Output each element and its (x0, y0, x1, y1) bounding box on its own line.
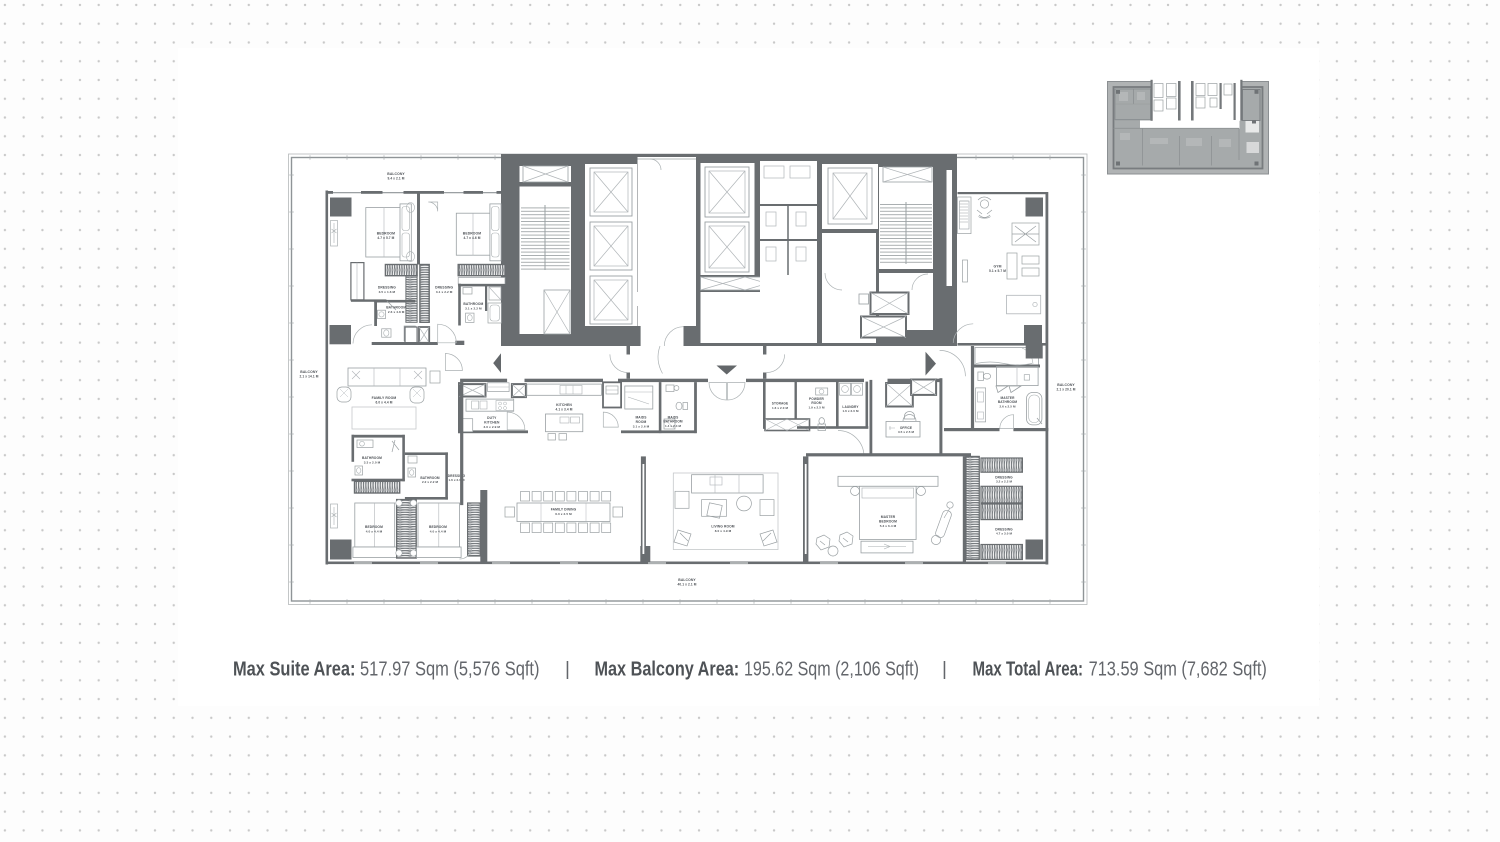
svg-text:|: | (942, 659, 947, 680)
svg-text:|: | (565, 659, 570, 680)
svg-text:3.5 x 2.5 M: 3.5 x 2.5 M (898, 430, 915, 434)
svg-text:4.7 x 3.0 M: 4.7 x 3.0 M (996, 532, 1013, 536)
svg-text:Max Total Area:: Max Total Area: (973, 659, 1084, 681)
svg-text:713.59 Sqm (7,682 Sqft): 713.59 Sqm (7,682 Sqft) (1089, 659, 1267, 681)
svg-text:2.6 x 2.5 M: 2.6 x 2.5 M (999, 404, 1016, 408)
svg-text:ROOM: ROOM (636, 420, 647, 424)
svg-text:4.1 x 3.4 M: 4.1 x 3.4 M (555, 408, 572, 412)
svg-text:BALCONY: BALCONY (300, 370, 318, 374)
svg-text:BEDROOM: BEDROOM (429, 525, 447, 529)
svg-text:2.1 x 14.1 M: 2.1 x 14.1 M (300, 375, 319, 379)
svg-text:1.6 x 2.0 M: 1.6 x 2.0 M (842, 409, 859, 413)
svg-text:BEDROOM: BEDROOM (377, 232, 395, 236)
svg-text:1.4 x 2.4 M: 1.4 x 2.4 M (665, 424, 682, 428)
svg-text:2.2 x 2.2 M: 2.2 x 2.2 M (422, 480, 439, 484)
svg-text:BATHROOM: BATHROOM (386, 306, 406, 310)
svg-text:195.62 Sqm (2,106 Sqft): 195.62 Sqm (2,106 Sqft) (744, 659, 919, 681)
svg-text:BALCONY: BALCONY (387, 172, 405, 176)
svg-text:STORAGE: STORAGE (772, 402, 788, 406)
svg-text:BATHROOM: BATHROOM (463, 302, 483, 306)
svg-text:3.1 x 2.2 M: 3.1 x 2.2 M (465, 306, 482, 310)
svg-text:40.1 x 2.1 M: 40.1 x 2.1 M (678, 583, 697, 587)
svg-text:KITCHEN: KITCHEN (556, 403, 572, 407)
svg-text:3.3 x 2.0 M: 3.3 x 2.0 M (364, 460, 381, 464)
svg-text:FAMILY DINING: FAMILY DINING (551, 508, 577, 512)
svg-text:5.1 x 5.7 M: 5.1 x 5.7 M (989, 269, 1006, 273)
svg-text:9.4 x 2.1 M: 9.4 x 2.1 M (387, 177, 404, 181)
svg-text:4.7 x 4.6 M: 4.7 x 4.6 M (463, 236, 480, 240)
svg-text:1.9 x 2.5 M: 1.9 x 2.5 M (808, 405, 825, 409)
svg-text:3.1 x 2.2 M: 3.1 x 2.2 M (436, 290, 453, 294)
svg-text:BALCONY: BALCONY (1057, 383, 1075, 387)
svg-text:Max Suite Area:: Max Suite Area: (233, 659, 356, 681)
svg-text:BALCONY: BALCONY (678, 578, 696, 582)
svg-text:3.5 x 1.6 M: 3.5 x 1.6 M (379, 290, 396, 294)
svg-text:DUTY: DUTY (487, 416, 497, 420)
svg-text:MASTER: MASTER (881, 515, 896, 519)
svg-text:5.3 x 6.4 M: 5.3 x 6.4 M (880, 524, 897, 528)
svg-text:6.0 x 4.4 M: 6.0 x 4.4 M (375, 401, 392, 405)
svg-text:BATHROOM: BATHROOM (362, 456, 382, 460)
svg-text:3.1 x 2.6 M: 3.1 x 2.6 M (633, 424, 650, 428)
svg-text:4.7 x 5.7 M: 4.7 x 5.7 M (377, 236, 394, 240)
svg-text:3.2 x 2.2 M: 3.2 x 2.2 M (996, 480, 1013, 484)
svg-text:DRESSING: DRESSING (435, 286, 453, 290)
svg-text:4.0 x 4.4 M: 4.0 x 4.4 M (430, 529, 447, 533)
svg-text:6.0 x 2.5 M: 6.0 x 2.5 M (555, 512, 572, 516)
svg-text:BEDROOM: BEDROOM (365, 525, 383, 529)
svg-text:BEDROOM: BEDROOM (463, 232, 481, 236)
svg-text:2.1 x 20.1 M: 2.1 x 20.1 M (1057, 388, 1076, 392)
svg-text:517.97 Sqm (5,576 Sqft): 517.97 Sqm (5,576 Sqft) (360, 659, 540, 681)
svg-text:FAMILY ROOM: FAMILY ROOM (372, 396, 397, 400)
svg-text:BEDROOM: BEDROOM (879, 519, 897, 523)
svg-text:DRESSING: DRESSING (378, 286, 396, 290)
svg-text:8.0 x 4.9 M: 8.0 x 4.9 M (715, 529, 732, 533)
svg-text:2.6 x 4.8 M: 2.6 x 4.8 M (388, 310, 405, 314)
svg-text:MAIDS: MAIDS (635, 416, 647, 420)
svg-text:4.0 x 4.4 M: 4.0 x 4.4 M (366, 529, 383, 533)
svg-text:GYM: GYM (993, 265, 1001, 269)
svg-text:KITCHEN: KITCHEN (484, 420, 500, 424)
svg-text:LIVING ROOM: LIVING ROOM (711, 525, 734, 529)
svg-text:Max Balcony Area:: Max Balcony Area: (595, 659, 740, 681)
svg-text:3.6 x 2.9 M: 3.6 x 2.9 M (484, 425, 501, 429)
svg-text:1.6 x 2.0 M: 1.6 x 2.0 M (772, 406, 789, 410)
